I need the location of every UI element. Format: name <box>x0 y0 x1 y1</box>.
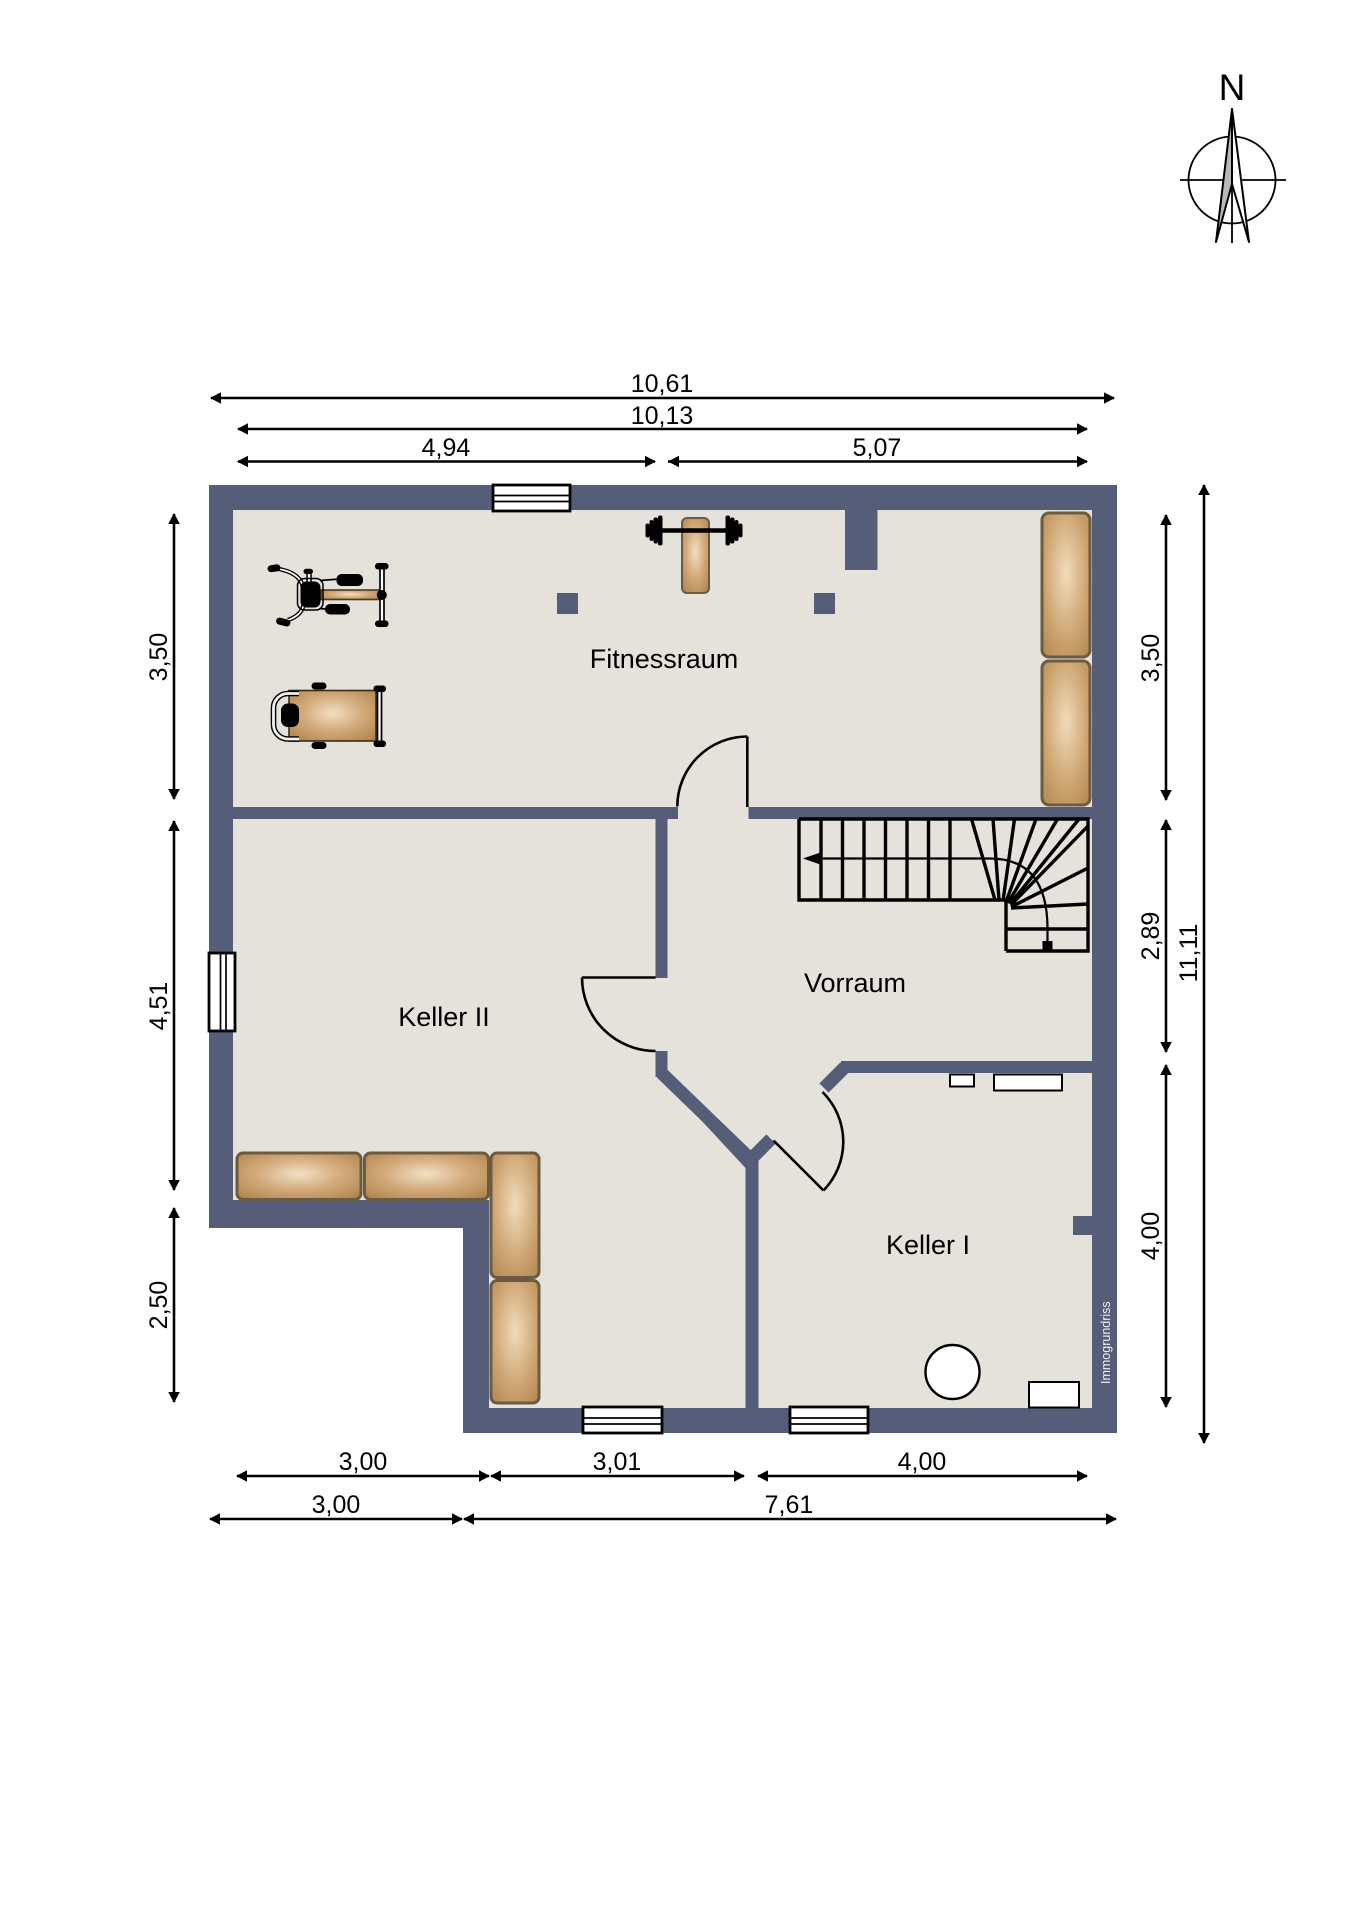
svg-text:3,50: 3,50 <box>1137 634 1165 683</box>
svg-text:Vorraum: Vorraum <box>804 968 906 998</box>
svg-text:5,07: 5,07 <box>853 434 902 462</box>
svg-text:10,13: 10,13 <box>631 402 694 430</box>
svg-text:3,50: 3,50 <box>145 633 173 682</box>
svg-text:4,00: 4,00 <box>1137 1212 1165 1261</box>
svg-text:11,11: 11,11 <box>1175 924 1203 983</box>
svg-text:Keller II: Keller II <box>398 1002 490 1032</box>
svg-text:3,00: 3,00 <box>339 1448 388 1476</box>
svg-text:4,51: 4,51 <box>145 982 173 1031</box>
svg-text:N: N <box>1219 67 1246 108</box>
svg-text:7,61: 7,61 <box>765 1491 814 1519</box>
svg-text:3,00: 3,00 <box>312 1491 361 1519</box>
svg-text:Keller I: Keller I <box>886 1230 970 1260</box>
svg-text:2,89: 2,89 <box>1137 912 1165 961</box>
svg-text:10,61: 10,61 <box>631 370 694 398</box>
svg-text:2,50: 2,50 <box>145 1281 173 1330</box>
svg-text:3,01: 3,01 <box>593 1448 642 1476</box>
svg-text:Fitnessraum: Fitnessraum <box>590 644 739 674</box>
svg-text:Immogrundriss: Immogrundriss <box>1099 1301 1113 1384</box>
svg-text:4,00: 4,00 <box>898 1448 947 1476</box>
svg-text:4,94: 4,94 <box>422 434 471 462</box>
